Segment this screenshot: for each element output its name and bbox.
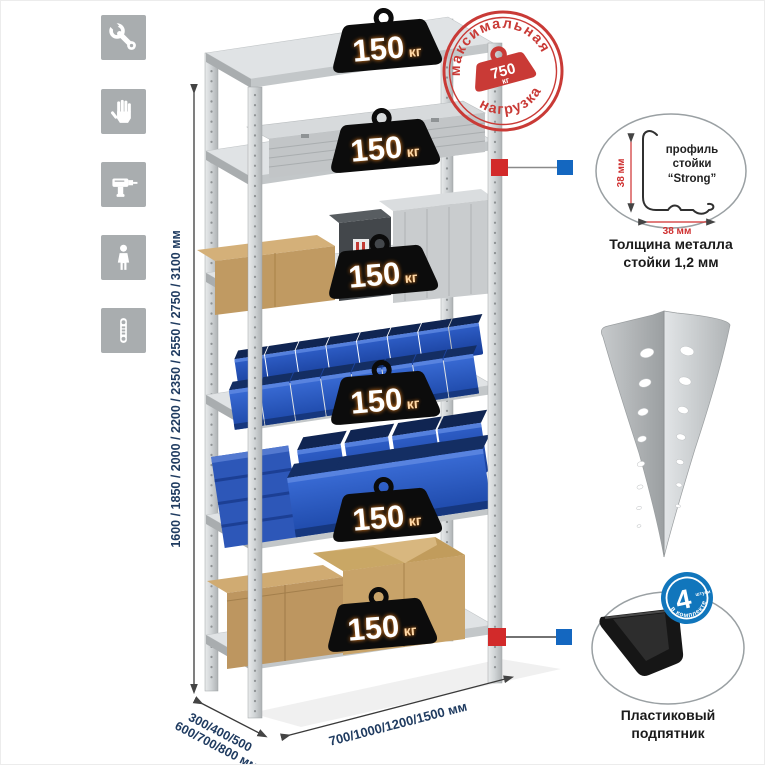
- corner-post-piece: [601, 311, 730, 557]
- top-callout-connector: [491, 159, 573, 176]
- red-marker-top: [491, 159, 508, 176]
- svg-text:150: 150: [347, 255, 402, 294]
- svg-text:150: 150: [351, 29, 406, 68]
- bottom-callout-connector: [488, 628, 572, 646]
- svg-text:стойки: стойки: [673, 158, 712, 170]
- profile-caption: Толщина металла стойки 1,2 мм: [584, 235, 758, 271]
- svg-text:профиль: профиль: [666, 144, 719, 156]
- weight-label-shelf1: 150 кг: [329, 6, 443, 74]
- svg-text:кг: кг: [408, 43, 422, 60]
- svg-text:1600 / 1850 / 2000 / 2200 / 23: 1600 / 1850 / 2000 / 2200 / 2350 / 2550 …: [169, 230, 183, 547]
- red-marker-bottom: [488, 628, 506, 646]
- svg-text:150: 150: [351, 498, 406, 537]
- foot-caption: Пластиковый подпятник: [586, 706, 750, 742]
- svg-text:150: 150: [349, 129, 404, 168]
- svg-text:кг: кг: [406, 395, 420, 412]
- svg-text:“Strong”: “Strong”: [668, 173, 717, 185]
- svg-text:кг: кг: [403, 622, 417, 639]
- svg-text:кг: кг: [408, 512, 422, 529]
- rack-illustration: 150 кг 150 кг 150 кг 150 кг 150 кг 150 к…: [1, 1, 765, 765]
- product-infographic: 150 кг 150 кг 150 кг 150 кг 150 кг 150 к…: [0, 0, 765, 765]
- profile-callout-circle: 38 мм 38 мм профиль стойки “Strong”: [596, 114, 746, 237]
- svg-text:150: 150: [346, 608, 401, 647]
- height-dimension: 1600 / 1850 / 2000 / 2200 / 2350 / 2550 …: [169, 89, 194, 689]
- svg-text:кг: кг: [404, 269, 418, 286]
- blue-marker-bottom: [556, 629, 572, 645]
- svg-text:38 мм: 38 мм: [616, 159, 627, 188]
- svg-text:кг: кг: [406, 143, 420, 160]
- blue-marker-top: [557, 160, 573, 175]
- svg-text:150: 150: [349, 381, 404, 420]
